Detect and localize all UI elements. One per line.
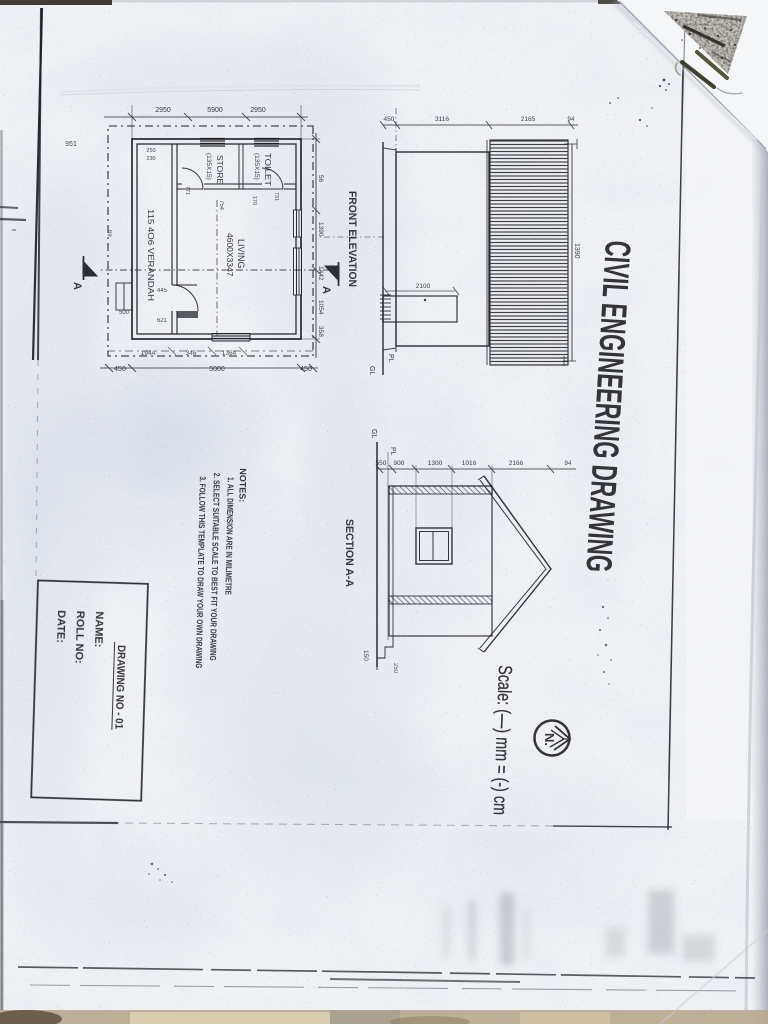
svg-text:1016: 1016 (462, 460, 477, 467)
svg-text:1390: 1390 (573, 243, 580, 259)
svg-text:1364: 1364 (222, 350, 237, 357)
svg-text:56: 56 (317, 175, 324, 183)
svg-text:GL: GL (370, 429, 377, 438)
svg-text:1054: 1054 (317, 300, 324, 315)
svg-text:250: 250 (146, 148, 155, 154)
svg-text:621: 621 (157, 318, 168, 324)
svg-text:500: 500 (119, 310, 130, 316)
svg-text:A: A (320, 286, 332, 294)
svg-text:TOILET: TOILET (263, 153, 272, 186)
svg-text:NOTES:: NOTES: (237, 468, 248, 502)
svg-text:94: 94 (567, 116, 575, 123)
svg-text:731: 731 (273, 192, 279, 201)
svg-text:1442: 1442 (317, 266, 324, 281)
svg-text:450: 450 (384, 116, 395, 123)
svg-text:DATE:: DATE: (54, 610, 67, 643)
svg-text:230: 230 (146, 156, 155, 162)
svg-text:1300: 1300 (428, 460, 443, 467)
svg-text:170: 170 (251, 196, 257, 205)
svg-text:SECTION A-A: SECTION A-A (343, 519, 355, 587)
svg-text:550: 550 (376, 460, 387, 467)
svg-text:951: 951 (65, 141, 77, 148)
svg-text:5000: 5000 (209, 366, 225, 373)
svg-text:450: 450 (300, 366, 312, 373)
svg-text:250: 250 (392, 663, 398, 674)
svg-text:(135X15): (135X15) (253, 153, 260, 180)
svg-text:69: 69 (106, 230, 112, 237)
svg-text:FRONT ELEVATION: FRONT ELEVATION (346, 191, 358, 287)
svg-text:94: 94 (564, 460, 572, 467)
svg-text:PL: PL (389, 447, 396, 456)
svg-text:(135X15): (135X15) (205, 153, 212, 180)
svg-text:4600X3347: 4600X3347 (225, 233, 235, 277)
svg-text:754: 754 (218, 200, 224, 211)
svg-text:346: 346 (186, 350, 197, 357)
svg-text:LIVING: LIVING (236, 239, 246, 269)
svg-text:NAME:: NAME: (92, 611, 105, 647)
svg-text:2166: 2166 (509, 460, 524, 467)
svg-text:900: 900 (394, 460, 405, 467)
svg-text:A: A (71, 282, 83, 290)
svg-text:358: 358 (317, 326, 324, 337)
svg-text:1944: 1944 (141, 350, 156, 357)
svg-text:115 4O6 VERANDAH: 115 4O6 VERANDAH (146, 209, 156, 301)
svg-text:STORE: STORE (215, 155, 224, 184)
svg-text:2100: 2100 (416, 283, 431, 290)
svg-text:GL: GL (368, 366, 375, 375)
svg-text:771: 771 (184, 186, 190, 195)
svg-text:3116: 3116 (435, 116, 449, 123)
svg-text:N.: N. (542, 733, 557, 746)
svg-text:2165: 2165 (521, 116, 536, 123)
svg-text:445: 445 (157, 288, 168, 294)
svg-text:5900: 5900 (207, 107, 223, 114)
svg-text:2950: 2950 (155, 107, 171, 114)
svg-text:2950: 2950 (250, 107, 266, 114)
svg-text:450: 450 (114, 366, 126, 373)
svg-text:ROLL NO:: ROLL NO: (72, 611, 86, 664)
svg-text:PL: PL (387, 354, 394, 363)
svg-text:150: 150 (362, 650, 369, 661)
svg-text:1390: 1390 (317, 222, 324, 237)
